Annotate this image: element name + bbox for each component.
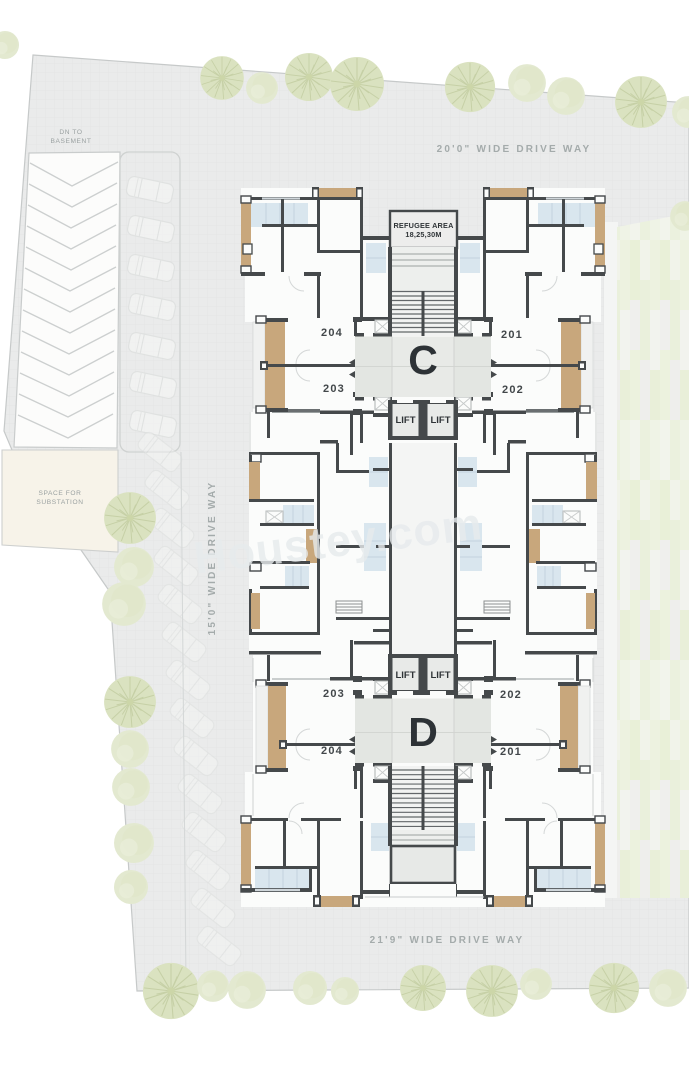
svg-text:LIFT: LIFT	[395, 415, 415, 426]
svg-text:SPACE FOR: SPACE FOR	[38, 490, 81, 497]
svg-text:SUBSTATION: SUBSTATION	[36, 499, 83, 506]
svg-text:LIFT: LIFT	[430, 670, 450, 681]
svg-text:LIFT: LIFT	[395, 670, 415, 681]
svg-text:C: C	[408, 337, 438, 383]
svg-text:201: 201	[501, 329, 523, 341]
svg-text:203: 203	[323, 688, 345, 700]
svg-text:204: 204	[321, 327, 343, 339]
svg-text:LIFT: LIFT	[430, 415, 450, 426]
svg-text:21'9" WIDE DRIVE WAY: 21'9" WIDE DRIVE WAY	[370, 935, 525, 946]
svg-text:202: 202	[500, 689, 522, 701]
svg-text:202: 202	[502, 384, 524, 396]
svg-text:20'0" WIDE DRIVE WAY: 20'0" WIDE DRIVE WAY	[437, 144, 592, 155]
svg-text:D: D	[408, 709, 438, 755]
svg-text:18,25,30M: 18,25,30M	[405, 230, 441, 239]
svg-text:201: 201	[500, 746, 522, 758]
svg-text:REFUGEE AREA: REFUGEE AREA	[393, 221, 454, 230]
svg-text:BASEMENT: BASEMENT	[50, 138, 91, 145]
svg-text:DN TO: DN TO	[59, 129, 82, 136]
svg-text:204: 204	[321, 745, 343, 757]
svg-text:203: 203	[323, 383, 345, 395]
